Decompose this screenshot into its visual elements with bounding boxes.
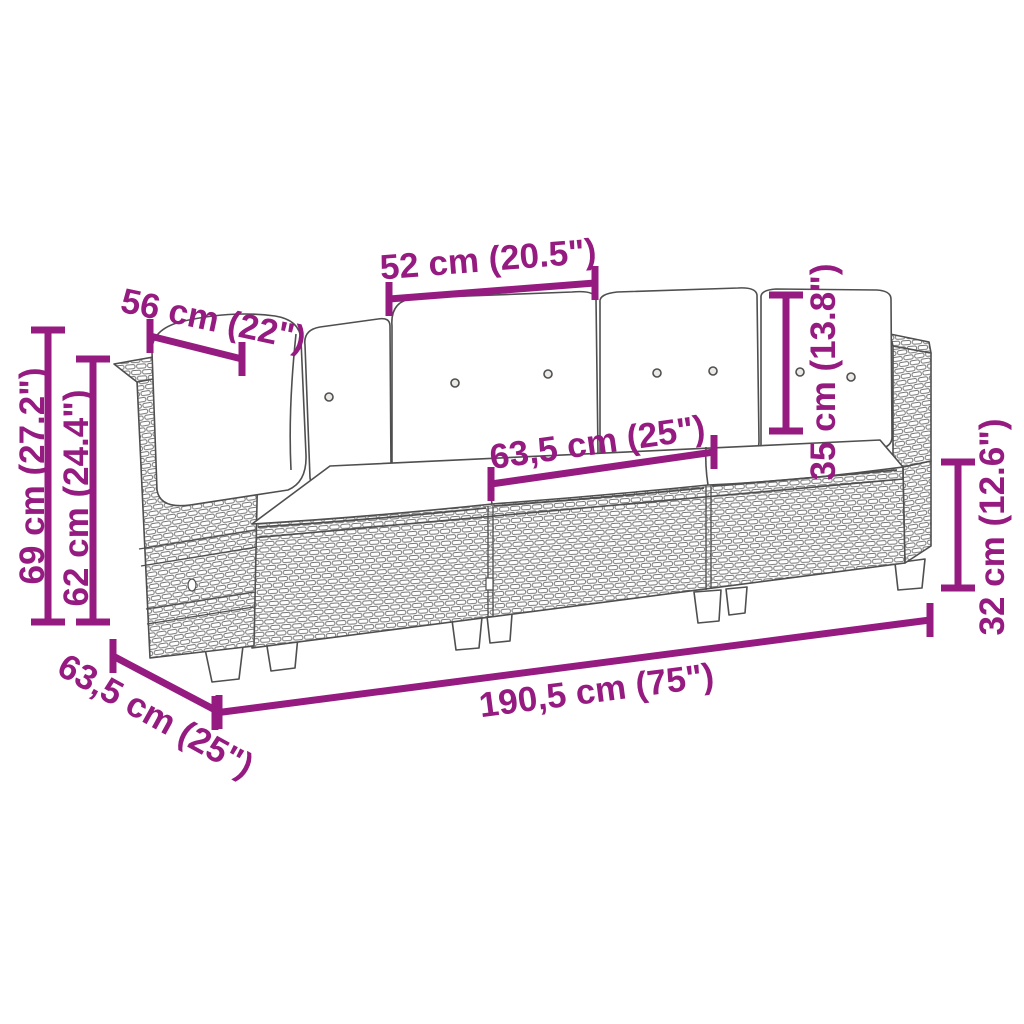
dimension-label-backrest-cushion-width: 52 cm (20.5") bbox=[378, 232, 597, 288]
diagram-canvas: 52 cm (20.5")56 cm (22")69 cm (27.2")62 … bbox=[0, 0, 1024, 1024]
cushion-button bbox=[325, 393, 333, 401]
dimension-frame-height: 32 cm (12.6") bbox=[941, 419, 1012, 636]
cushion-button bbox=[847, 373, 855, 381]
base-seam-slot bbox=[486, 578, 493, 590]
cushion-button bbox=[653, 369, 661, 377]
leg-mid-right-b bbox=[726, 587, 747, 615]
cushion-button bbox=[709, 367, 717, 375]
base-right-side bbox=[903, 461, 931, 563]
right-armrest bbox=[890, 334, 931, 467]
cushion-button bbox=[796, 368, 804, 376]
leg-mid-right-a bbox=[694, 590, 721, 623]
cushion-button bbox=[451, 379, 459, 387]
dimension-label-total-height: 69 cm (27.2") bbox=[13, 368, 52, 585]
leg-mid-left-b bbox=[487, 614, 512, 643]
left-armrest-hole bbox=[188, 579, 196, 591]
dimension-label-armrest-height: 62 cm (24.4") bbox=[57, 390, 96, 607]
cushion-button bbox=[544, 370, 552, 378]
dimension-label-back-cushion-height: 35 cm (13.8") bbox=[804, 264, 843, 481]
dimension-armrest-height: 62 cm (24.4") bbox=[57, 359, 110, 622]
right-armrest-face bbox=[893, 346, 931, 467]
product-dimension-diagram: 52 cm (20.5")56 cm (22")69 cm (27.2")62 … bbox=[0, 0, 1024, 1024]
dimension-label-frame-height: 32 cm (12.6") bbox=[973, 419, 1012, 636]
